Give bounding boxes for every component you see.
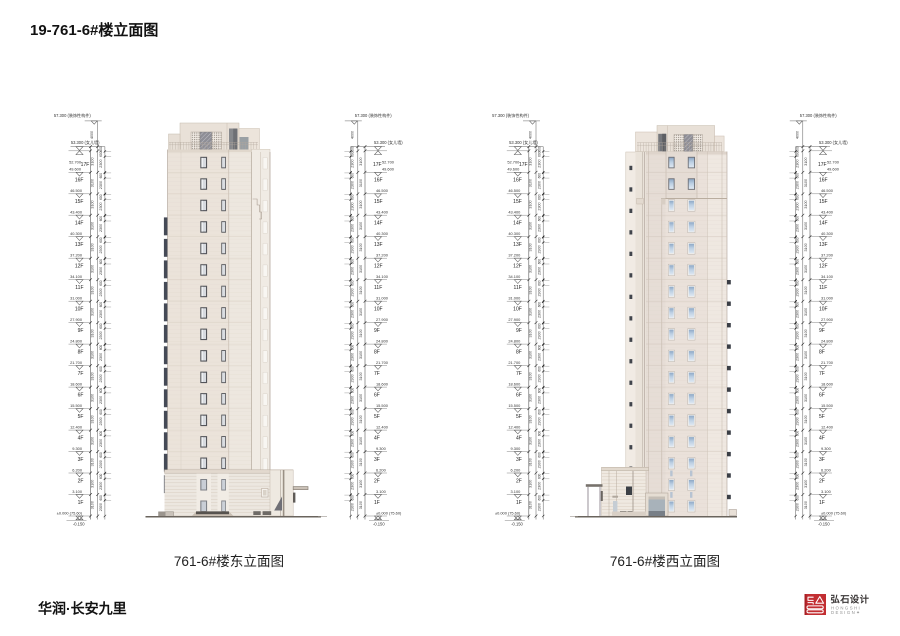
svg-text:3.100: 3.100 bbox=[72, 489, 83, 494]
svg-text:600: 600 bbox=[350, 345, 354, 351]
svg-text:2300: 2300 bbox=[99, 439, 103, 447]
svg-text:2F: 2F bbox=[819, 478, 825, 484]
svg-text:600: 600 bbox=[795, 259, 799, 265]
svg-text:9F: 9F bbox=[516, 328, 522, 334]
svg-text:2300: 2300 bbox=[350, 159, 354, 167]
svg-text:761-6#楼西立面图: 761-6#楼西立面图 bbox=[610, 554, 720, 569]
svg-text:6.200: 6.200 bbox=[821, 467, 832, 472]
svg-text:27.900: 27.900 bbox=[70, 317, 83, 322]
svg-text:2300: 2300 bbox=[795, 245, 799, 253]
svg-text:3100: 3100 bbox=[529, 437, 533, 445]
svg-text:3100: 3100 bbox=[804, 200, 808, 208]
svg-text:1F: 1F bbox=[374, 500, 380, 506]
svg-text:600: 600 bbox=[795, 345, 799, 351]
svg-text:3100: 3100 bbox=[90, 437, 94, 445]
svg-text:9F: 9F bbox=[78, 328, 84, 334]
svg-text:2300: 2300 bbox=[537, 439, 541, 447]
svg-text:2300: 2300 bbox=[537, 245, 541, 253]
svg-text:21.700: 21.700 bbox=[821, 360, 834, 365]
svg-text:2F: 2F bbox=[516, 478, 522, 484]
svg-text:600: 600 bbox=[99, 302, 103, 308]
svg-text:57.300 (装饰性构件): 57.300 (装饰性构件) bbox=[800, 112, 837, 118]
svg-text:17F: 17F bbox=[818, 162, 827, 168]
svg-text:9.300: 9.300 bbox=[376, 446, 387, 451]
svg-text:3100: 3100 bbox=[804, 243, 808, 251]
svg-text:40.300: 40.300 bbox=[376, 231, 389, 236]
svg-text:3100: 3100 bbox=[804, 415, 808, 423]
svg-text:31.000: 31.000 bbox=[821, 296, 834, 301]
svg-text:3100: 3100 bbox=[804, 480, 808, 488]
svg-text:40.300: 40.300 bbox=[70, 231, 83, 236]
svg-text:9.300: 9.300 bbox=[511, 446, 522, 451]
svg-text:2300: 2300 bbox=[537, 224, 541, 232]
svg-text:2300: 2300 bbox=[795, 417, 799, 425]
svg-text:2300: 2300 bbox=[795, 181, 799, 189]
svg-text:600: 600 bbox=[795, 146, 799, 152]
svg-text:600: 600 bbox=[350, 366, 354, 372]
svg-text:600: 600 bbox=[99, 474, 103, 480]
svg-text:24.800: 24.800 bbox=[508, 339, 521, 344]
svg-text:18.600: 18.600 bbox=[70, 382, 83, 387]
svg-text:40.300: 40.300 bbox=[821, 231, 834, 236]
svg-text:600: 600 bbox=[537, 237, 541, 243]
svg-text:2300: 2300 bbox=[537, 482, 541, 490]
svg-text:17F: 17F bbox=[373, 162, 382, 168]
svg-text:3100: 3100 bbox=[529, 308, 533, 316]
svg-text:600: 600 bbox=[350, 495, 354, 501]
svg-text:7F: 7F bbox=[78, 371, 84, 377]
svg-text:3100: 3100 bbox=[529, 200, 533, 208]
svg-text:600: 600 bbox=[350, 173, 354, 179]
svg-text:761-6#楼东立面图: 761-6#楼东立面图 bbox=[174, 554, 284, 569]
svg-text:-0.150: -0.150 bbox=[818, 521, 830, 526]
svg-text:3F: 3F bbox=[78, 457, 84, 463]
svg-text:3100: 3100 bbox=[529, 222, 533, 230]
svg-text:2300: 2300 bbox=[350, 267, 354, 275]
svg-text:57.300 (装饰性构件): 57.300 (装饰性构件) bbox=[54, 112, 91, 118]
svg-text:57.300 (装饰性构件): 57.300 (装饰性构件) bbox=[492, 112, 529, 118]
svg-text:600: 600 bbox=[350, 280, 354, 286]
svg-text:±0.000 (75.60): ±0.000 (75.60) bbox=[57, 510, 83, 515]
svg-text:6F: 6F bbox=[78, 393, 84, 399]
svg-text:2300: 2300 bbox=[350, 181, 354, 189]
svg-text:12F: 12F bbox=[513, 264, 522, 270]
svg-text:2300: 2300 bbox=[795, 267, 799, 275]
svg-text:15F: 15F bbox=[374, 199, 383, 205]
svg-text:3100: 3100 bbox=[90, 286, 94, 294]
svg-text:600: 600 bbox=[99, 431, 103, 437]
svg-text:3100: 3100 bbox=[359, 458, 363, 466]
svg-text:6.200: 6.200 bbox=[376, 467, 387, 472]
svg-text:600: 600 bbox=[99, 237, 103, 243]
svg-text:2300: 2300 bbox=[350, 288, 354, 296]
svg-text:3100: 3100 bbox=[90, 243, 94, 251]
svg-text:3100: 3100 bbox=[359, 200, 363, 208]
svg-text:-0.150: -0.150 bbox=[511, 521, 523, 526]
svg-text:600: 600 bbox=[795, 216, 799, 222]
svg-text:3100: 3100 bbox=[804, 351, 808, 359]
svg-text:16F: 16F bbox=[374, 178, 383, 184]
svg-text:7F: 7F bbox=[516, 371, 522, 377]
svg-text:±0.000 (75.60): ±0.000 (75.60) bbox=[495, 510, 521, 515]
svg-text:24.800: 24.800 bbox=[821, 339, 834, 344]
svg-text:16F: 16F bbox=[75, 178, 84, 184]
svg-text:2300: 2300 bbox=[795, 310, 799, 318]
svg-text:600: 600 bbox=[537, 146, 541, 152]
svg-text:3100: 3100 bbox=[529, 394, 533, 402]
svg-text:37.200: 37.200 bbox=[376, 253, 389, 258]
svg-text:9F: 9F bbox=[374, 328, 380, 334]
svg-text:2300: 2300 bbox=[99, 417, 103, 425]
svg-text:6F: 6F bbox=[374, 393, 380, 399]
svg-text:21.700: 21.700 bbox=[376, 360, 389, 365]
svg-text:10F: 10F bbox=[75, 307, 84, 313]
svg-text:34.100: 34.100 bbox=[508, 274, 521, 279]
svg-text:43.400: 43.400 bbox=[508, 210, 521, 215]
svg-text:600: 600 bbox=[99, 259, 103, 265]
svg-text:52.700: 52.700 bbox=[69, 160, 82, 165]
svg-text:15.500: 15.500 bbox=[508, 403, 521, 408]
svg-text:2300: 2300 bbox=[795, 374, 799, 382]
svg-text:2300: 2300 bbox=[537, 503, 541, 511]
svg-text:12F: 12F bbox=[75, 264, 84, 270]
svg-text:3F: 3F bbox=[819, 457, 825, 463]
svg-text:5F: 5F bbox=[78, 414, 84, 420]
svg-text:8F: 8F bbox=[374, 350, 380, 356]
svg-text:600: 600 bbox=[99, 194, 103, 200]
svg-text:2300: 2300 bbox=[350, 202, 354, 210]
svg-text:2300: 2300 bbox=[537, 396, 541, 404]
svg-text:21.700: 21.700 bbox=[70, 360, 83, 365]
svg-text:2300: 2300 bbox=[537, 460, 541, 468]
svg-text:600: 600 bbox=[795, 388, 799, 394]
svg-text:600: 600 bbox=[350, 452, 354, 458]
svg-text:11F: 11F bbox=[514, 285, 522, 291]
svg-text:11F: 11F bbox=[374, 285, 382, 291]
svg-text:2300: 2300 bbox=[350, 331, 354, 339]
svg-text:5F: 5F bbox=[516, 414, 522, 420]
svg-text:600: 600 bbox=[350, 216, 354, 222]
svg-text:5F: 5F bbox=[819, 414, 825, 420]
svg-text:600: 600 bbox=[795, 495, 799, 501]
svg-text:3.100: 3.100 bbox=[821, 489, 832, 494]
svg-text:600: 600 bbox=[795, 280, 799, 286]
svg-text:6F: 6F bbox=[516, 393, 522, 399]
svg-text:600: 600 bbox=[350, 323, 354, 329]
svg-text:53.300 (女儿墙): 53.300 (女儿墙) bbox=[509, 139, 538, 145]
svg-text:3100: 3100 bbox=[529, 265, 533, 273]
svg-text:3100: 3100 bbox=[359, 351, 363, 359]
svg-text:600: 600 bbox=[795, 474, 799, 480]
svg-text:5F: 5F bbox=[374, 414, 380, 420]
svg-text:2300: 2300 bbox=[795, 482, 799, 490]
svg-text:27.900: 27.900 bbox=[376, 317, 389, 322]
svg-text:3100: 3100 bbox=[90, 308, 94, 316]
svg-text:3100: 3100 bbox=[529, 351, 533, 359]
svg-text:600: 600 bbox=[99, 173, 103, 179]
svg-text:600: 600 bbox=[350, 409, 354, 415]
svg-text:14F: 14F bbox=[75, 221, 84, 227]
svg-text:2300: 2300 bbox=[99, 331, 103, 339]
svg-text:7F: 7F bbox=[374, 371, 380, 377]
svg-text:600: 600 bbox=[537, 495, 541, 501]
svg-text:3100: 3100 bbox=[529, 372, 533, 380]
svg-text:2300: 2300 bbox=[99, 159, 103, 167]
svg-text:2300: 2300 bbox=[99, 288, 103, 296]
svg-text:4000: 4000 bbox=[350, 131, 354, 139]
svg-text:600: 600 bbox=[795, 194, 799, 200]
svg-text:3100: 3100 bbox=[804, 394, 808, 402]
svg-text:2300: 2300 bbox=[795, 503, 799, 511]
svg-text:600: 600 bbox=[537, 194, 541, 200]
svg-text:14F: 14F bbox=[819, 221, 828, 227]
svg-text:27.900: 27.900 bbox=[508, 317, 521, 322]
svg-text:600: 600 bbox=[537, 366, 541, 372]
svg-text:3100: 3100 bbox=[529, 480, 533, 488]
svg-text:13F: 13F bbox=[513, 242, 522, 248]
svg-text:16F: 16F bbox=[819, 178, 828, 184]
svg-text:49.600: 49.600 bbox=[382, 166, 395, 171]
svg-text:12.400: 12.400 bbox=[821, 425, 834, 430]
svg-text:600: 600 bbox=[350, 388, 354, 394]
svg-text:3100: 3100 bbox=[804, 286, 808, 294]
svg-text:18.600: 18.600 bbox=[821, 382, 834, 387]
svg-text:600: 600 bbox=[537, 302, 541, 308]
svg-text:3100: 3100 bbox=[90, 157, 94, 165]
svg-text:18.600: 18.600 bbox=[376, 382, 389, 387]
svg-text:3100: 3100 bbox=[529, 179, 533, 187]
svg-text:4000: 4000 bbox=[795, 131, 799, 139]
svg-text:57.300 (装饰性构件): 57.300 (装饰性构件) bbox=[355, 112, 392, 118]
svg-text:2300: 2300 bbox=[350, 417, 354, 425]
svg-text:15.500: 15.500 bbox=[821, 403, 834, 408]
svg-text:3100: 3100 bbox=[804, 458, 808, 466]
svg-text:18.600: 18.600 bbox=[508, 382, 521, 387]
svg-text:15F: 15F bbox=[513, 199, 522, 205]
svg-text:12.400: 12.400 bbox=[70, 425, 83, 430]
svg-text:4F: 4F bbox=[374, 436, 380, 442]
svg-text:10F: 10F bbox=[819, 307, 828, 313]
svg-text:3100: 3100 bbox=[90, 394, 94, 402]
svg-text:3100: 3100 bbox=[804, 501, 808, 509]
svg-text:3100: 3100 bbox=[804, 222, 808, 230]
svg-text:±0.000 (75.60): ±0.000 (75.60) bbox=[376, 510, 402, 515]
svg-text:2300: 2300 bbox=[350, 503, 354, 511]
svg-text:600: 600 bbox=[99, 366, 103, 372]
svg-text:46.500: 46.500 bbox=[821, 188, 834, 193]
svg-text:2300: 2300 bbox=[99, 460, 103, 468]
svg-text:6.200: 6.200 bbox=[511, 467, 522, 472]
svg-text:600: 600 bbox=[537, 259, 541, 265]
svg-text:24.800: 24.800 bbox=[376, 339, 389, 344]
svg-text:3100: 3100 bbox=[359, 501, 363, 509]
svg-text:600: 600 bbox=[537, 431, 541, 437]
svg-text:3100: 3100 bbox=[90, 372, 94, 380]
svg-text:600: 600 bbox=[537, 452, 541, 458]
svg-text:9F: 9F bbox=[819, 328, 825, 334]
svg-text:3100: 3100 bbox=[359, 157, 363, 165]
svg-text:3100: 3100 bbox=[529, 329, 533, 337]
svg-text:11F: 11F bbox=[819, 285, 827, 291]
svg-text:2300: 2300 bbox=[350, 224, 354, 232]
svg-text:12.400: 12.400 bbox=[376, 425, 389, 430]
svg-text:3100: 3100 bbox=[90, 200, 94, 208]
svg-text:34.100: 34.100 bbox=[376, 274, 389, 279]
svg-text:2300: 2300 bbox=[350, 460, 354, 468]
svg-text:49.600: 49.600 bbox=[507, 166, 520, 171]
svg-text:3100: 3100 bbox=[529, 286, 533, 294]
svg-text:3100: 3100 bbox=[90, 222, 94, 230]
svg-text:24.800: 24.800 bbox=[70, 339, 83, 344]
svg-text:2300: 2300 bbox=[537, 417, 541, 425]
svg-text:600: 600 bbox=[350, 302, 354, 308]
svg-text:17F: 17F bbox=[519, 162, 528, 168]
svg-text:3100: 3100 bbox=[359, 308, 363, 316]
svg-text:40.300: 40.300 bbox=[508, 231, 521, 236]
svg-text:13F: 13F bbox=[819, 242, 828, 248]
svg-text:3100: 3100 bbox=[90, 265, 94, 273]
svg-text:600: 600 bbox=[99, 323, 103, 329]
svg-text:2300: 2300 bbox=[350, 245, 354, 253]
svg-text:华润·长安九里: 华润·长安九里 bbox=[38, 601, 127, 617]
svg-text:600: 600 bbox=[537, 409, 541, 415]
svg-text:2300: 2300 bbox=[350, 374, 354, 382]
svg-text:34.100: 34.100 bbox=[70, 274, 83, 279]
svg-text:27.900: 27.900 bbox=[821, 317, 834, 322]
svg-text:3100: 3100 bbox=[804, 157, 808, 165]
svg-text:3100: 3100 bbox=[529, 157, 533, 165]
svg-text:2300: 2300 bbox=[99, 353, 103, 361]
svg-text:3100: 3100 bbox=[359, 437, 363, 445]
svg-text:2300: 2300 bbox=[537, 310, 541, 318]
svg-text:14F: 14F bbox=[513, 221, 522, 227]
svg-text:49.600: 49.600 bbox=[69, 166, 82, 171]
svg-text:600: 600 bbox=[99, 280, 103, 286]
svg-text:600: 600 bbox=[795, 431, 799, 437]
svg-text:2300: 2300 bbox=[537, 353, 541, 361]
svg-text:3100: 3100 bbox=[90, 458, 94, 466]
svg-text:3100: 3100 bbox=[804, 372, 808, 380]
svg-text:17F: 17F bbox=[81, 162, 90, 168]
svg-text:3100: 3100 bbox=[804, 308, 808, 316]
svg-text:15.500: 15.500 bbox=[376, 403, 389, 408]
svg-text:14F: 14F bbox=[374, 221, 383, 227]
svg-text:2300: 2300 bbox=[99, 267, 103, 275]
svg-text:2300: 2300 bbox=[99, 374, 103, 382]
svg-text:600: 600 bbox=[537, 216, 541, 222]
svg-text:1F: 1F bbox=[516, 500, 522, 506]
svg-text:3F: 3F bbox=[374, 457, 380, 463]
svg-text:3100: 3100 bbox=[90, 480, 94, 488]
svg-text:600: 600 bbox=[350, 194, 354, 200]
svg-text:37.200: 37.200 bbox=[821, 253, 834, 258]
svg-text:2300: 2300 bbox=[350, 353, 354, 361]
svg-text:3100: 3100 bbox=[359, 179, 363, 187]
svg-text:600: 600 bbox=[99, 146, 103, 152]
svg-text:3100: 3100 bbox=[529, 501, 533, 509]
svg-text:4F: 4F bbox=[78, 436, 84, 442]
svg-text:600: 600 bbox=[537, 280, 541, 286]
svg-text:2300: 2300 bbox=[537, 374, 541, 382]
svg-text:21.700: 21.700 bbox=[508, 360, 521, 365]
svg-text:13F: 13F bbox=[75, 242, 84, 248]
svg-text:2300: 2300 bbox=[795, 224, 799, 232]
svg-text:2300: 2300 bbox=[537, 181, 541, 189]
svg-text:15F: 15F bbox=[819, 199, 828, 205]
svg-text:600: 600 bbox=[99, 388, 103, 394]
svg-text:53.300 (女儿墙): 53.300 (女儿墙) bbox=[374, 139, 403, 145]
svg-text:1F: 1F bbox=[819, 500, 825, 506]
svg-text:2300: 2300 bbox=[795, 288, 799, 296]
svg-text:3100: 3100 bbox=[804, 179, 808, 187]
svg-text:2300: 2300 bbox=[350, 439, 354, 447]
svg-text:46.500: 46.500 bbox=[70, 188, 83, 193]
svg-text:2300: 2300 bbox=[537, 159, 541, 167]
svg-text:31.000: 31.000 bbox=[508, 296, 521, 301]
svg-text:19-761-6#楼立面图: 19-761-6#楼立面图 bbox=[30, 21, 158, 39]
svg-text:3100: 3100 bbox=[359, 329, 363, 337]
svg-text:2300: 2300 bbox=[99, 245, 103, 253]
svg-text:600: 600 bbox=[537, 323, 541, 329]
svg-text:2300: 2300 bbox=[99, 224, 103, 232]
svg-text:2300: 2300 bbox=[795, 439, 799, 447]
svg-text:31.000: 31.000 bbox=[70, 296, 83, 301]
svg-text:37.200: 37.200 bbox=[508, 253, 521, 258]
svg-text:10F: 10F bbox=[513, 307, 522, 313]
svg-text:3.100: 3.100 bbox=[511, 489, 522, 494]
svg-text:4000: 4000 bbox=[90, 131, 94, 139]
svg-text:43.400: 43.400 bbox=[376, 210, 389, 215]
svg-text:1F: 1F bbox=[78, 500, 84, 506]
svg-text:3100: 3100 bbox=[804, 265, 808, 273]
svg-text:2300: 2300 bbox=[795, 202, 799, 210]
svg-text:3100: 3100 bbox=[359, 480, 363, 488]
svg-text:12.400: 12.400 bbox=[508, 425, 521, 430]
svg-text:-0.150: -0.150 bbox=[373, 521, 385, 526]
svg-text:2300: 2300 bbox=[795, 460, 799, 468]
svg-text:2300: 2300 bbox=[795, 331, 799, 339]
svg-text:7F: 7F bbox=[819, 371, 825, 377]
svg-text:2300: 2300 bbox=[99, 396, 103, 404]
svg-text:52.700: 52.700 bbox=[382, 160, 395, 165]
svg-text:53.300 (女儿墙): 53.300 (女儿墙) bbox=[71, 139, 100, 145]
svg-text:15.500: 15.500 bbox=[70, 403, 83, 408]
svg-text:12F: 12F bbox=[819, 264, 828, 270]
svg-text:600: 600 bbox=[795, 452, 799, 458]
svg-text:3.100: 3.100 bbox=[376, 489, 387, 494]
svg-text:10F: 10F bbox=[374, 307, 383, 313]
svg-text:3100: 3100 bbox=[359, 222, 363, 230]
svg-text:11F: 11F bbox=[75, 285, 83, 291]
svg-text:2F: 2F bbox=[374, 478, 380, 484]
svg-text:-0.150: -0.150 bbox=[73, 521, 85, 526]
svg-text:±0.000 (75.60): ±0.000 (75.60) bbox=[821, 510, 847, 515]
svg-text:2300: 2300 bbox=[99, 503, 103, 511]
svg-text:2300: 2300 bbox=[350, 310, 354, 318]
svg-text:3100: 3100 bbox=[359, 394, 363, 402]
svg-text:2300: 2300 bbox=[99, 181, 103, 189]
svg-text:37.200: 37.200 bbox=[70, 253, 83, 258]
svg-text:9.300: 9.300 bbox=[821, 446, 832, 451]
svg-text:43.400: 43.400 bbox=[821, 210, 834, 215]
svg-text:600: 600 bbox=[350, 474, 354, 480]
svg-text:9.300: 9.300 bbox=[72, 446, 83, 451]
svg-text:3100: 3100 bbox=[359, 243, 363, 251]
svg-text:6.200: 6.200 bbox=[72, 467, 83, 472]
svg-text:3100: 3100 bbox=[529, 458, 533, 466]
svg-text:34.100: 34.100 bbox=[821, 274, 834, 279]
svg-text:600: 600 bbox=[99, 345, 103, 351]
